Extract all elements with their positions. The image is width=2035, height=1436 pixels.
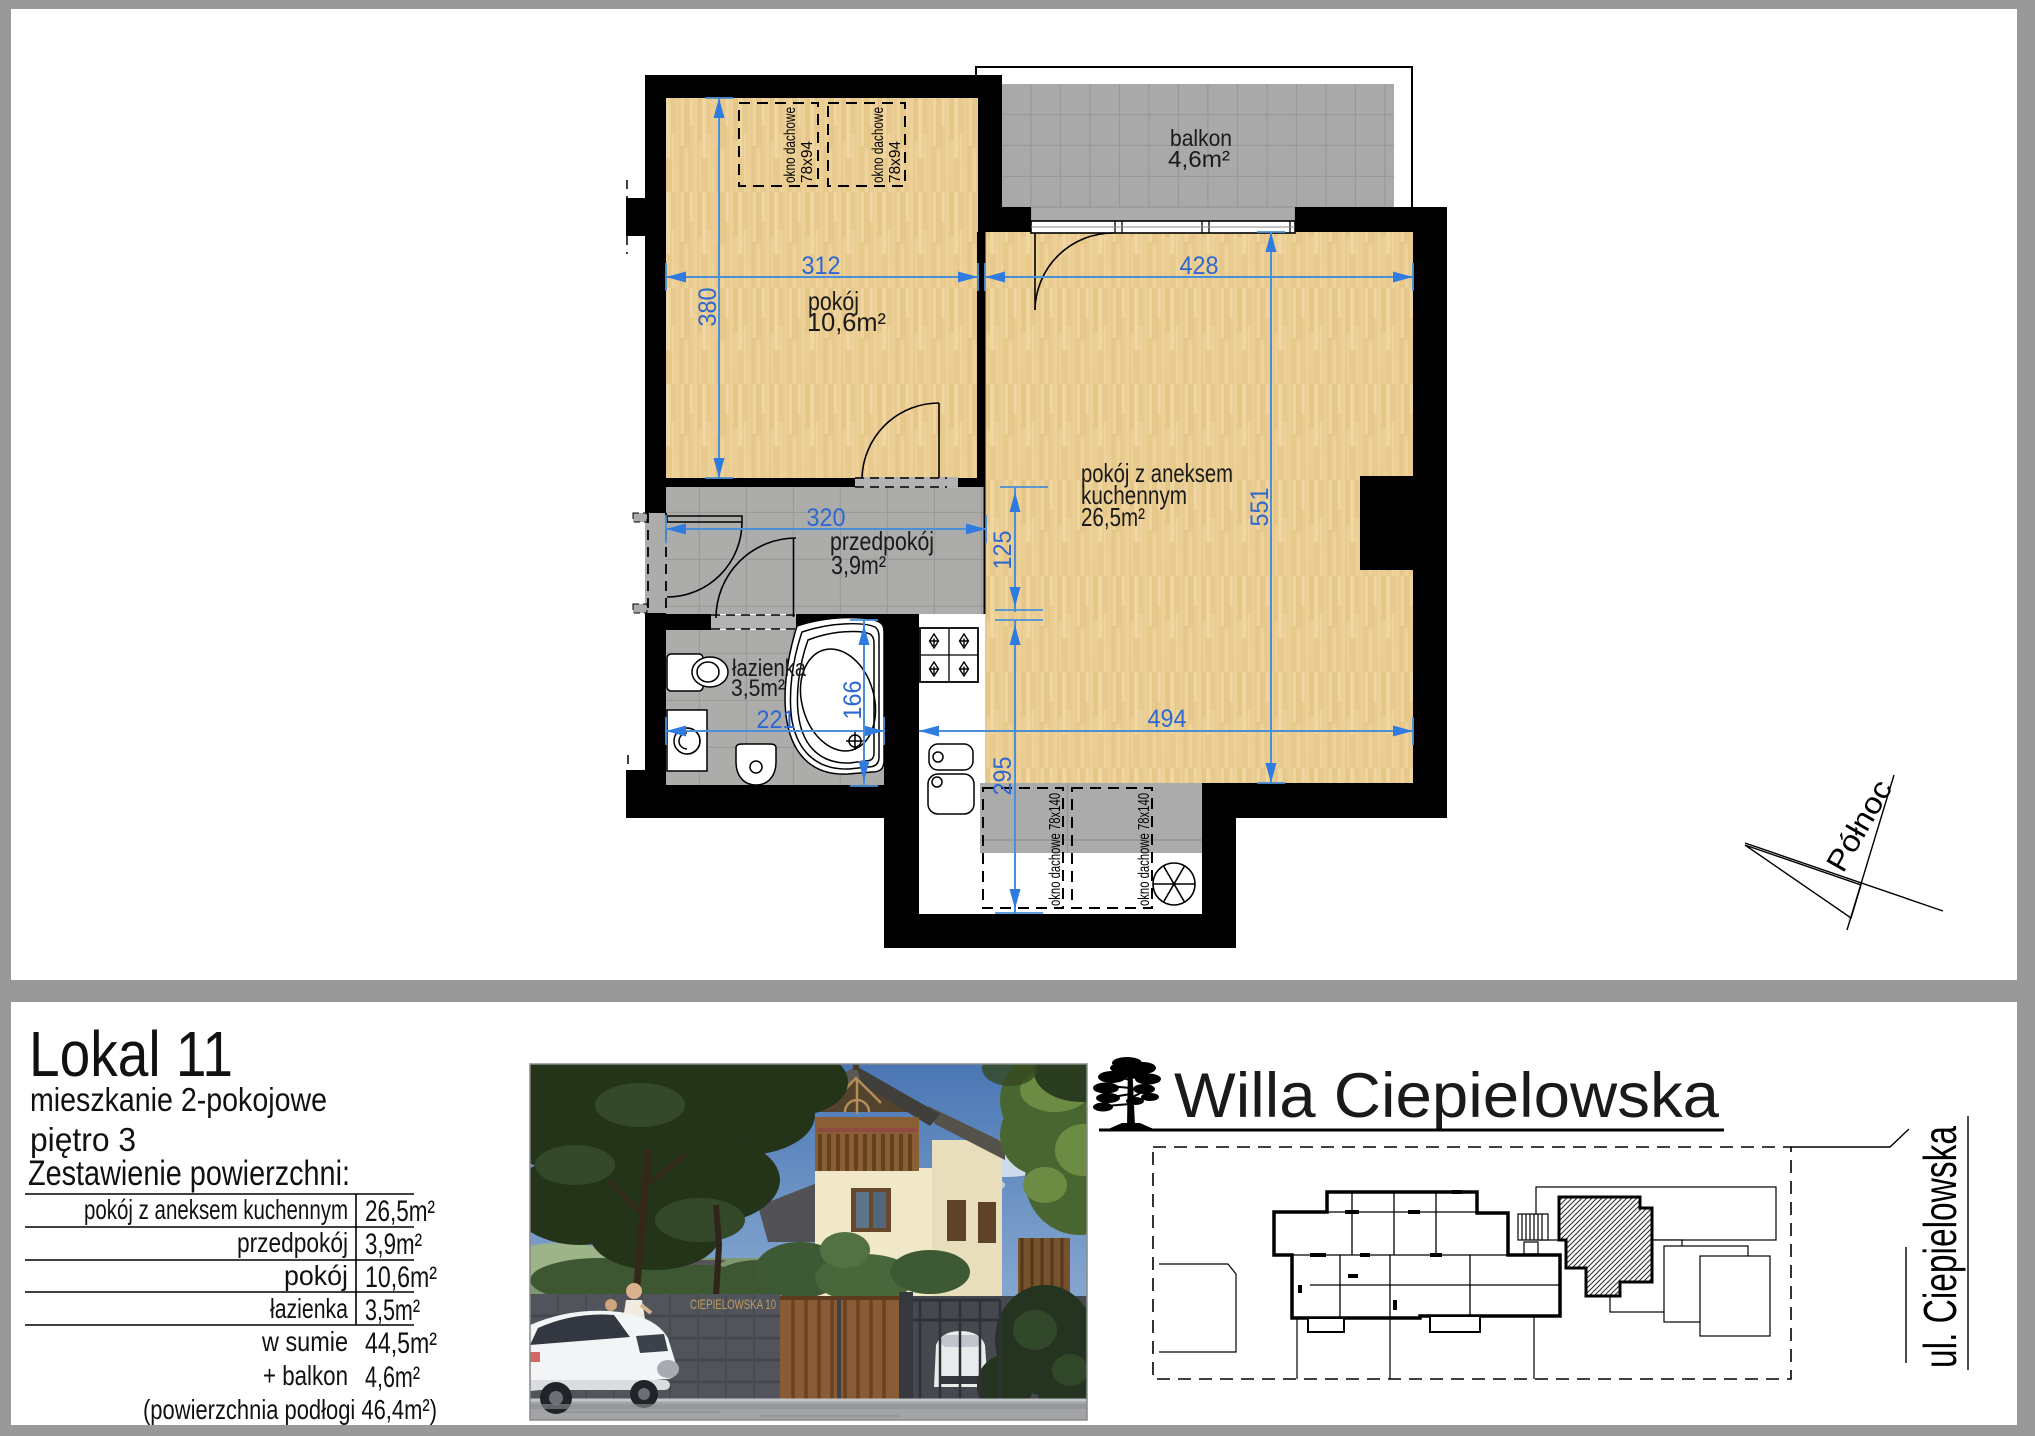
svg-text:3,9m²: 3,9m² (831, 550, 886, 580)
svg-text:10,6m²: 10,6m² (807, 307, 886, 337)
svg-text:221: 221 (757, 706, 796, 734)
svg-text:4,6m²: 4,6m² (365, 1361, 420, 1394)
svg-text:mieszkanie 2-pokojowe: mieszkanie 2-pokojowe (30, 1081, 327, 1118)
svg-text:pokój z aneksem kuchennym: pokój z aneksem kuchennym (84, 1194, 348, 1225)
svg-text:łazienka: łazienka (270, 1293, 348, 1324)
svg-text:okno dachowe 78x140: okno dachowe 78x140 (1047, 793, 1064, 906)
svg-text:(powierzchnia podłogi 46,4m²): (powierzchnia podłogi 46,4m²) (143, 1394, 437, 1425)
svg-text:pokój: pokój (284, 1260, 348, 1291)
svg-text:CIEPIELOWSKA 10: CIEPIELOWSKA 10 (690, 1296, 776, 1312)
svg-text:26,5m²: 26,5m² (1081, 502, 1145, 532)
svg-text:10,6m²: 10,6m² (365, 1261, 437, 1294)
svg-text:78x94: 78x94 (799, 141, 816, 183)
svg-text:w sumie: w sumie (261, 1326, 348, 1357)
svg-text:3,9m²: 3,9m² (365, 1228, 422, 1261)
svg-text:Lokal 11: Lokal 11 (29, 1018, 233, 1090)
svg-text:312: 312 (802, 252, 841, 280)
svg-text:166: 166 (839, 681, 867, 720)
svg-text:Zestawienie powierzchni:: Zestawienie powierzchni: (28, 1154, 350, 1193)
svg-text:78x94: 78x94 (887, 141, 904, 183)
svg-text:Willa Ciepielowska: Willa Ciepielowska (1174, 1061, 1720, 1131)
svg-text:44,5m²: 44,5m² (365, 1327, 437, 1360)
svg-text:551: 551 (1246, 488, 1274, 527)
svg-text:26,5m²: 26,5m² (365, 1195, 435, 1228)
svg-text:320: 320 (807, 504, 846, 532)
svg-text:okno dachowe 78x140: okno dachowe 78x140 (1136, 793, 1153, 906)
svg-text:ul. Ciepielowska: ul. Ciepielowska (1914, 1126, 1966, 1368)
svg-text:380: 380 (694, 288, 722, 327)
svg-text:okno dachowe: okno dachowe (870, 107, 887, 183)
svg-text:4,6m²: 4,6m² (1168, 146, 1230, 172)
svg-text:494: 494 (1148, 705, 1187, 733)
svg-text:+ balkon: + balkon (263, 1360, 348, 1391)
svg-text:okno dachowe: okno dachowe (782, 107, 799, 183)
svg-text:3,5m²: 3,5m² (365, 1294, 420, 1327)
svg-text:125: 125 (989, 531, 1017, 570)
svg-text:428: 428 (1180, 252, 1219, 280)
svg-text:przedpokój: przedpokój (237, 1227, 348, 1258)
svg-text:piętro 3: piętro 3 (30, 1121, 136, 1158)
svg-text:3,5m²: 3,5m² (731, 675, 785, 702)
svg-text:295: 295 (989, 757, 1017, 796)
